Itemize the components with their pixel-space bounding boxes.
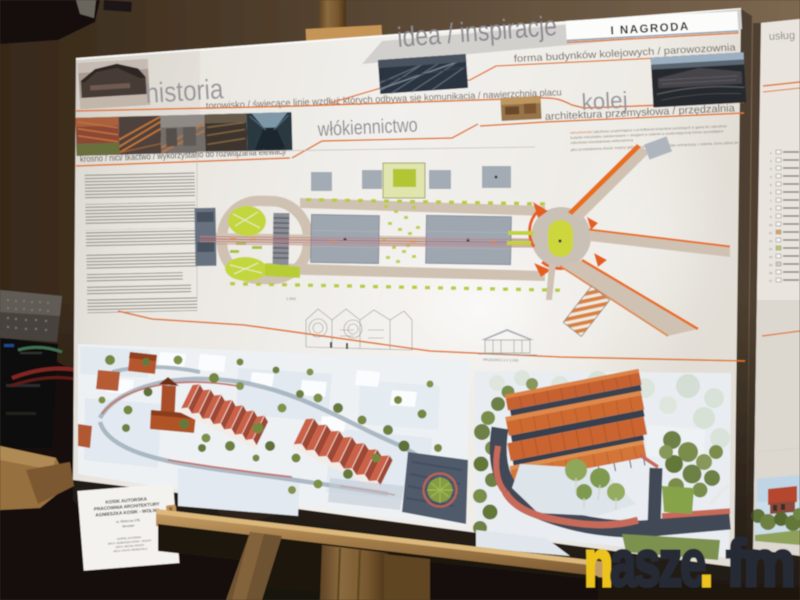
svg-text:11: 11 xyxy=(769,231,772,235)
svg-text:13: 13 xyxy=(769,247,773,251)
svg-text:15: 15 xyxy=(769,263,773,267)
svg-text:usług: usług xyxy=(769,30,796,43)
svg-text:16: 16 xyxy=(769,271,773,275)
svg-text:n: n xyxy=(584,527,611,600)
svg-text:asze: asze xyxy=(610,527,706,600)
svg-text:fm: fm xyxy=(726,527,793,600)
svg-text:PRZEKRÓJ 2-2 1:200: PRZEKRÓJ 2-2 1:200 xyxy=(483,357,518,363)
svg-text:17: 17 xyxy=(769,279,773,283)
svg-text:12: 12 xyxy=(769,239,773,243)
svg-text:włókiennictwo: włókiennictwo xyxy=(316,114,418,141)
svg-text:1:500: 1:500 xyxy=(286,296,297,301)
svg-text:14: 14 xyxy=(769,255,773,259)
svg-text:10: 10 xyxy=(769,223,773,227)
svg-text:.: . xyxy=(700,527,711,600)
